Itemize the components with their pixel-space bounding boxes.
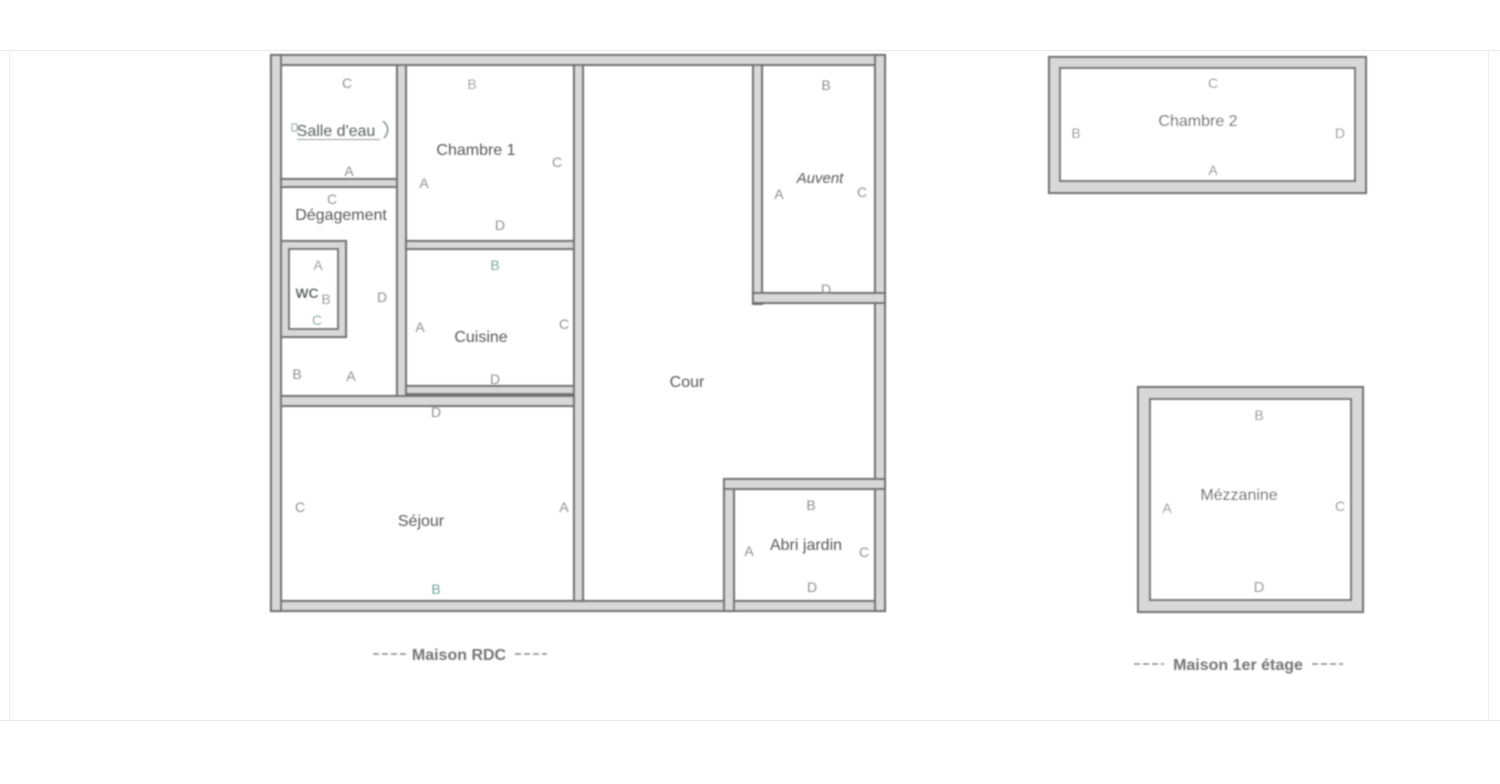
svg-text:C: C bbox=[552, 154, 562, 170]
svg-text:Abri jardin: Abri jardin bbox=[770, 537, 842, 554]
svg-text:Dégagement: Dégagement bbox=[295, 207, 387, 224]
svg-text:A: A bbox=[1208, 162, 1218, 178]
svg-text:A: A bbox=[346, 368, 356, 384]
svg-text:B: B bbox=[321, 291, 330, 307]
svg-text:WC: WC bbox=[295, 285, 318, 301]
svg-text:C: C bbox=[295, 499, 305, 515]
svg-text:C: C bbox=[327, 191, 337, 207]
svg-text:Cour: Cour bbox=[670, 374, 705, 391]
svg-text:B: B bbox=[292, 366, 301, 382]
svg-text:A: A bbox=[1162, 500, 1172, 516]
svg-text:C: C bbox=[859, 544, 869, 560]
svg-text:Auvent: Auvent bbox=[796, 170, 845, 187]
svg-text:D: D bbox=[490, 371, 500, 387]
svg-text:D: D bbox=[495, 217, 505, 233]
svg-text:Maison 1er étage: Maison 1er étage bbox=[1173, 657, 1303, 674]
svg-text:A: A bbox=[744, 543, 754, 559]
svg-text:D: D bbox=[377, 289, 387, 305]
svg-text:B: B bbox=[1071, 125, 1080, 141]
svg-text:C: C bbox=[342, 75, 352, 91]
svg-text:Cuisine: Cuisine bbox=[454, 329, 507, 346]
svg-text:D: D bbox=[1335, 125, 1345, 141]
svg-text:B: B bbox=[431, 581, 440, 597]
svg-text:C: C bbox=[312, 312, 322, 328]
svg-text:Séjour: Séjour bbox=[398, 513, 445, 530]
svg-text:D: D bbox=[431, 404, 441, 420]
svg-text:D: D bbox=[821, 281, 831, 297]
svg-text:Chambre 1: Chambre 1 bbox=[436, 142, 515, 159]
svg-text:C: C bbox=[857, 184, 867, 200]
svg-text:D: D bbox=[807, 579, 817, 595]
svg-text:Chambre 2: Chambre 2 bbox=[1158, 113, 1237, 130]
svg-text:A: A bbox=[313, 257, 323, 273]
svg-text:B: B bbox=[467, 76, 476, 92]
svg-text:Maison RDC: Maison RDC bbox=[412, 647, 507, 664]
svg-text:D: D bbox=[1254, 579, 1265, 596]
svg-text:B: B bbox=[1254, 407, 1263, 423]
svg-text:Salle d'eau: Salle d'eau bbox=[297, 123, 376, 140]
svg-text:C: C bbox=[559, 316, 569, 332]
svg-text:Mézzanine: Mézzanine bbox=[1200, 487, 1277, 504]
svg-text:A: A bbox=[774, 186, 784, 202]
svg-text:A: A bbox=[415, 319, 425, 335]
svg-text:A: A bbox=[559, 499, 569, 515]
svg-text:B: B bbox=[490, 257, 499, 273]
svg-text:C: C bbox=[1208, 75, 1218, 91]
svg-text:A: A bbox=[344, 163, 354, 179]
svg-text:C: C bbox=[1335, 498, 1345, 514]
svg-text:B: B bbox=[821, 77, 830, 93]
svg-text:B: B bbox=[806, 497, 815, 513]
svg-text:A: A bbox=[419, 175, 429, 191]
